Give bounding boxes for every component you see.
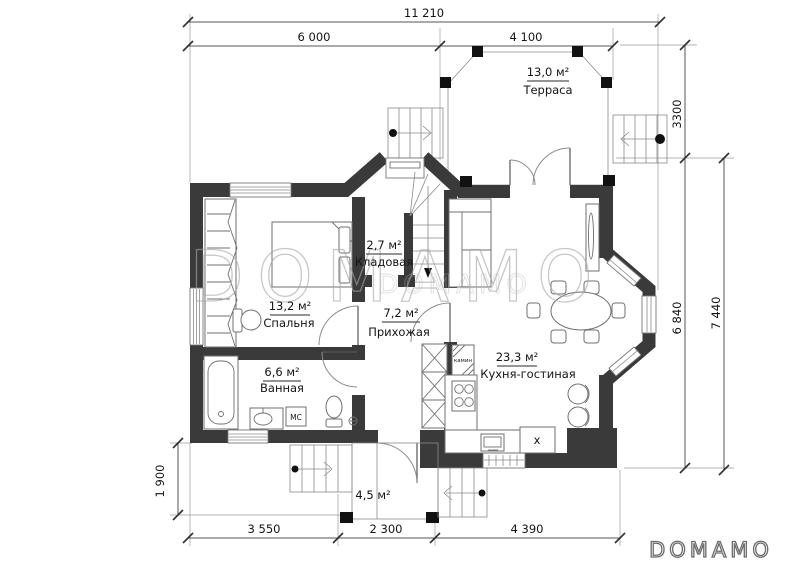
floor-plan-drawing: 11 210 6 000 4 100 3300 6 840 7 440 1 90…: [0, 0, 800, 565]
room-label-bathroom: 6,6 м² Ванная: [260, 365, 304, 395]
wall-post: [460, 176, 472, 187]
svg-text:4,5 м²: 4,5 м²: [355, 488, 390, 502]
breakfast-chairs: [568, 384, 589, 427]
terrace-double-door: [510, 148, 570, 185]
appliance-label: x: [534, 433, 541, 447]
brand-logo: DOMAMO: [649, 538, 773, 562]
room-label-bedroom: 13,2 м² Спальня: [263, 299, 314, 330]
porch-stair-right: [438, 468, 487, 517]
exterior-stair-top-right: [613, 115, 667, 163]
dim-porch-depth: 1 900: [153, 465, 167, 498]
room-label-kitchen-living: 23,3 м² Кухня-гостиная: [480, 350, 575, 381]
hall-wardrobe: [422, 344, 447, 428]
dim-width-left: 6 000: [298, 30, 331, 44]
svg-text:Терраса: Терраса: [522, 83, 572, 97]
room-label-terrace: 13,0 м² Терраса: [522, 65, 572, 97]
bedroom-window-top: [230, 183, 291, 197]
svg-text:Спальня: Спальня: [263, 316, 314, 330]
dim-total-width: 11 210: [404, 6, 444, 20]
svg-text:13,2 м²: 13,2 м²: [269, 299, 312, 313]
dim-house-depth-inner: 6 840: [670, 302, 684, 335]
porch-post: [426, 512, 439, 523]
fireplace-label: камин: [454, 358, 472, 364]
svg-text:Прихожая: Прихожая: [368, 325, 430, 339]
bathroom-window: [228, 430, 268, 443]
fireplace: камин: [452, 345, 474, 375]
svg-text:7,2 м²: 7,2 м²: [383, 306, 418, 320]
washing-machine: МС: [286, 407, 306, 426]
terrace-post: [572, 46, 583, 57]
dim-terrace-depth: 3300: [670, 99, 684, 128]
terrace-post: [440, 77, 451, 88]
bathtub: [204, 356, 238, 429]
hallway-furniture: [422, 344, 447, 428]
floor-plan-page: 11 210 6 000 4 100 3300 6 840 7 440 1 90…: [0, 0, 800, 565]
bathroom-sink: [250, 408, 283, 429]
terrace-post: [601, 77, 612, 88]
room-label-porch: 4,5 м²: [355, 488, 390, 502]
porch-post: [340, 512, 353, 523]
svg-text:Кухня-гостиная: Кухня-гостиная: [480, 367, 575, 381]
washer-label: МС: [290, 413, 302, 422]
svg-text:2,7 м²: 2,7 м²: [366, 238, 401, 252]
kitchen-window: [483, 453, 525, 468]
dim-bottom-left: 3 550: [248, 522, 281, 536]
watermark-small: DOMAMO: [378, 270, 532, 300]
terrace-post: [472, 46, 483, 57]
dim-width-right: 4 100: [510, 30, 543, 44]
dim-bottom-right: 4 390: [511, 522, 544, 536]
svg-text:13,0 м²: 13,0 м²: [527, 65, 570, 79]
svg-text:Кладовая: Кладовая: [355, 255, 413, 269]
svg-text:Ванная: Ванная: [260, 381, 304, 395]
exterior-stair-top-left: [388, 108, 443, 158]
dim-bottom-center: 2 300: [370, 522, 403, 536]
dim-house-depth-outer: 7 440: [709, 297, 723, 330]
toilet: [326, 396, 342, 427]
kitchen-counter: x: [445, 375, 555, 453]
entrance-door: [377, 443, 417, 483]
kitchen-sink: [481, 434, 504, 451]
porch-stair-left: [290, 445, 352, 492]
vestibule-entry: [386, 158, 424, 178]
wall-post: [603, 175, 615, 186]
svg-text:23,3 м²: 23,3 м²: [496, 350, 539, 364]
svg-text:6,6 м²: 6,6 м²: [264, 365, 299, 379]
